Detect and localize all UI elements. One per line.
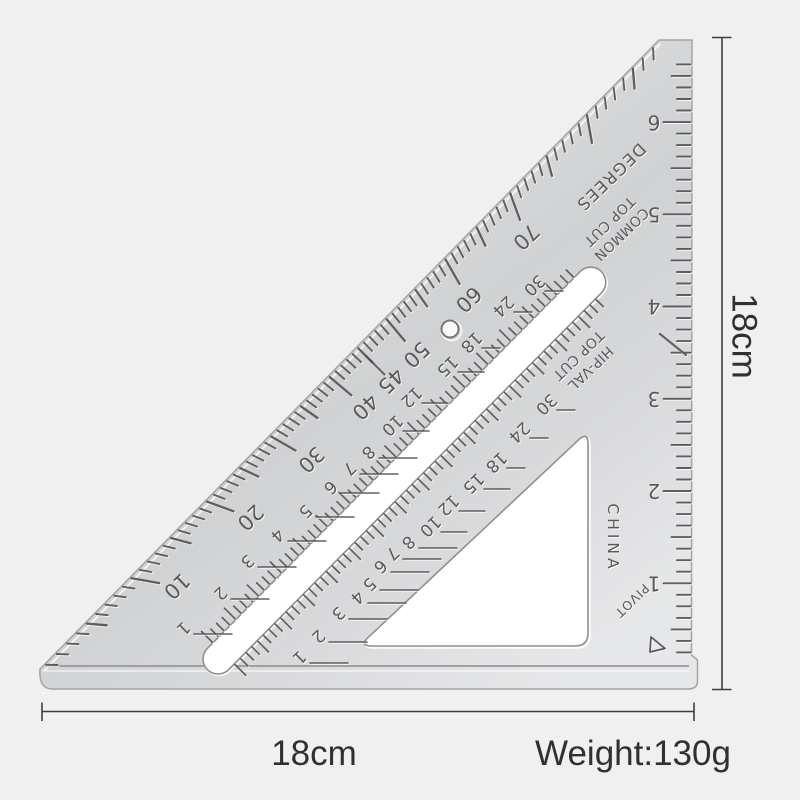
- height-dimension-label: 18cm: [725, 293, 764, 379]
- product-image: 1020304045506070 123456 1234567810121518…: [0, 0, 800, 800]
- width-dimension-label: 18cm: [271, 734, 357, 773]
- scale-number: 2: [648, 479, 661, 503]
- tick-mark: [77, 633, 89, 634]
- scale-number: 4: [648, 295, 661, 319]
- tick-mark: [623, 79, 624, 90]
- hole: [442, 321, 459, 338]
- scale-number: 6: [648, 110, 661, 134]
- width-dimension: 18cm Weight:130g: [42, 703, 731, 774]
- hang-hole: [442, 321, 462, 341]
- height-dimension: 18cm: [712, 38, 764, 690]
- tick-mark: [96, 614, 107, 615]
- weight-label: Weight:130g: [535, 734, 731, 773]
- origin-label: CHINA: [604, 503, 622, 572]
- scale-number: 3: [648, 387, 661, 411]
- speed-square-scene: 1020304045506070 123456 1234567810121518…: [0, 0, 800, 800]
- tick-mark: [653, 48, 654, 60]
- tick-mark: [643, 59, 644, 70]
- tick-mark: [67, 644, 79, 645]
